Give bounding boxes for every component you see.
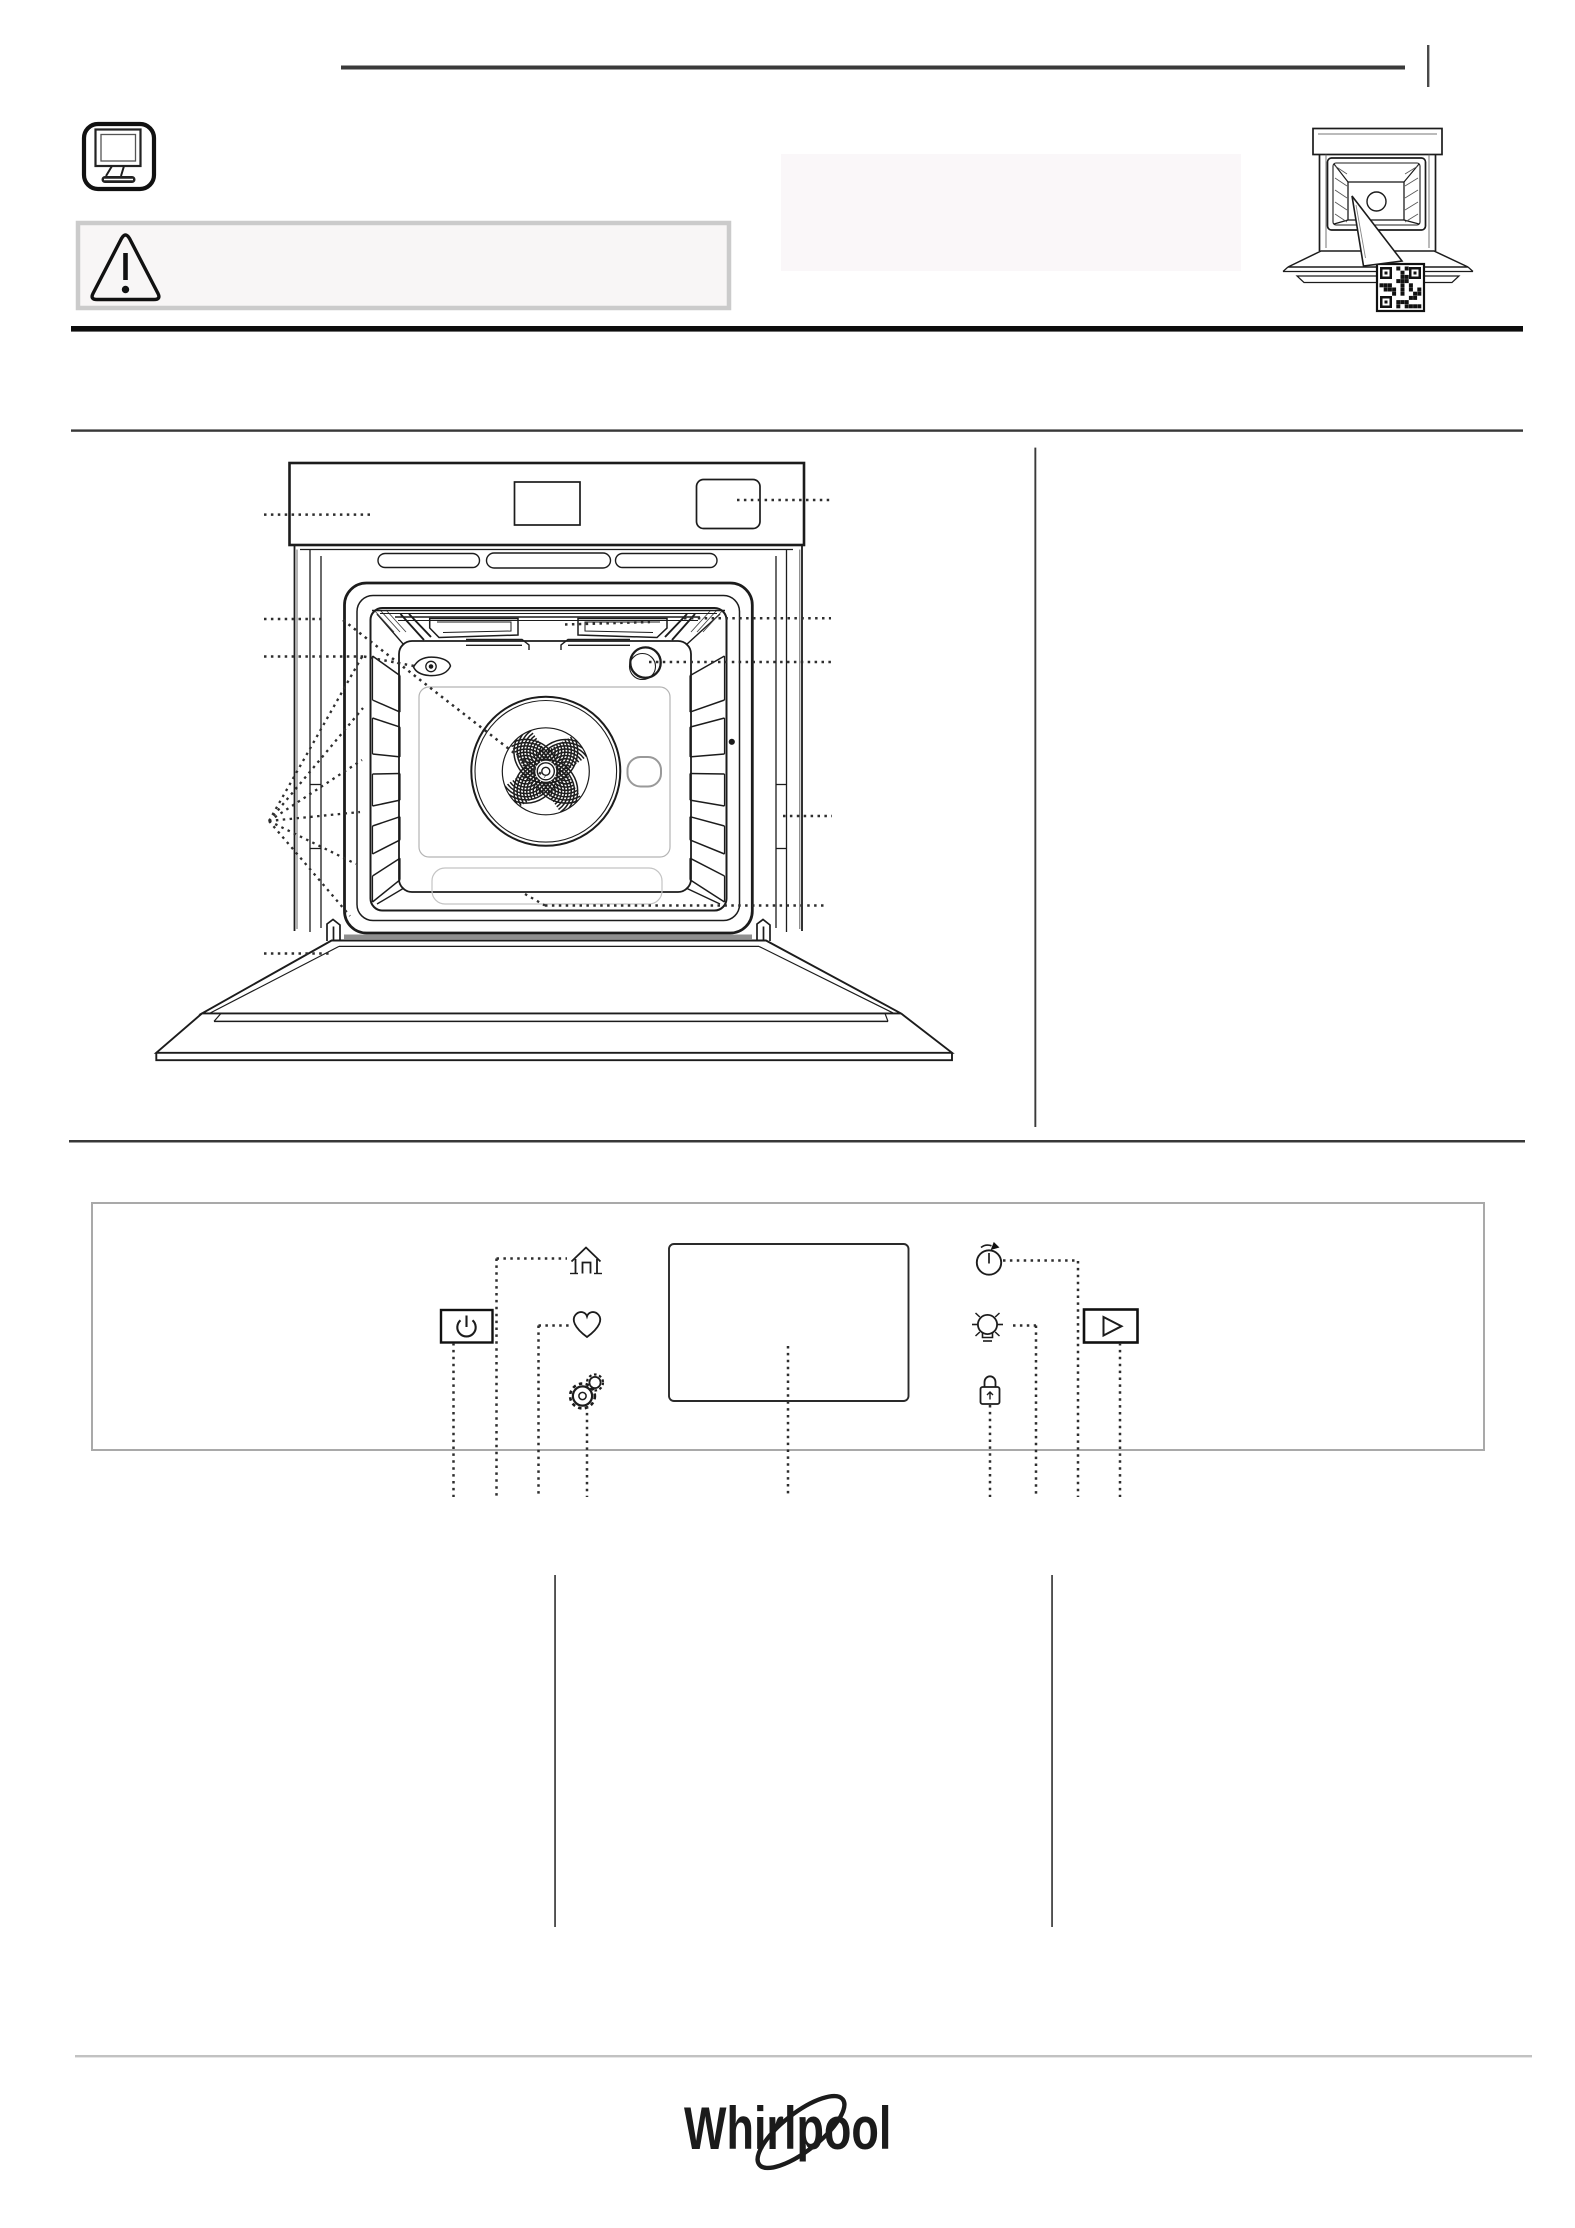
svg-text:Whirlpool: Whirlpool <box>684 2096 891 2163</box>
